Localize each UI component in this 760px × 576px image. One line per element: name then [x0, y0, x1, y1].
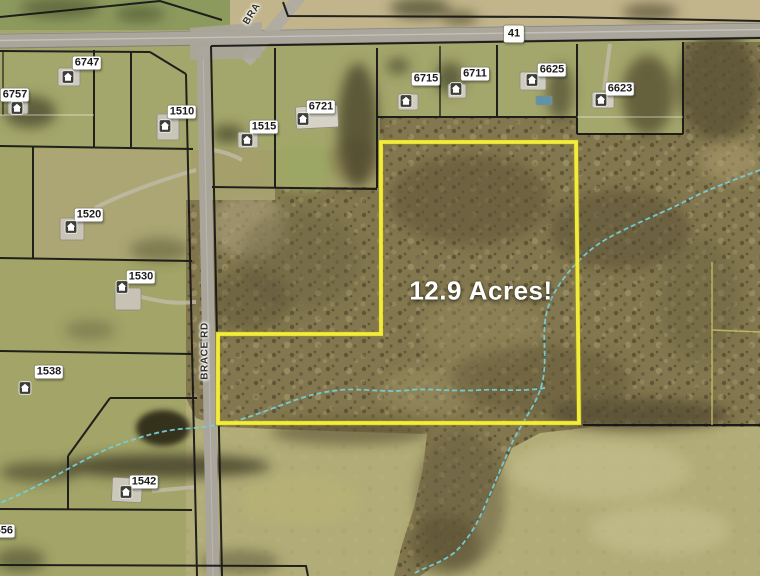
aerial-imagery-layer [0, 0, 760, 576]
aerial-parcel-map: 6747675715101515672167156711662566231520… [0, 0, 760, 576]
